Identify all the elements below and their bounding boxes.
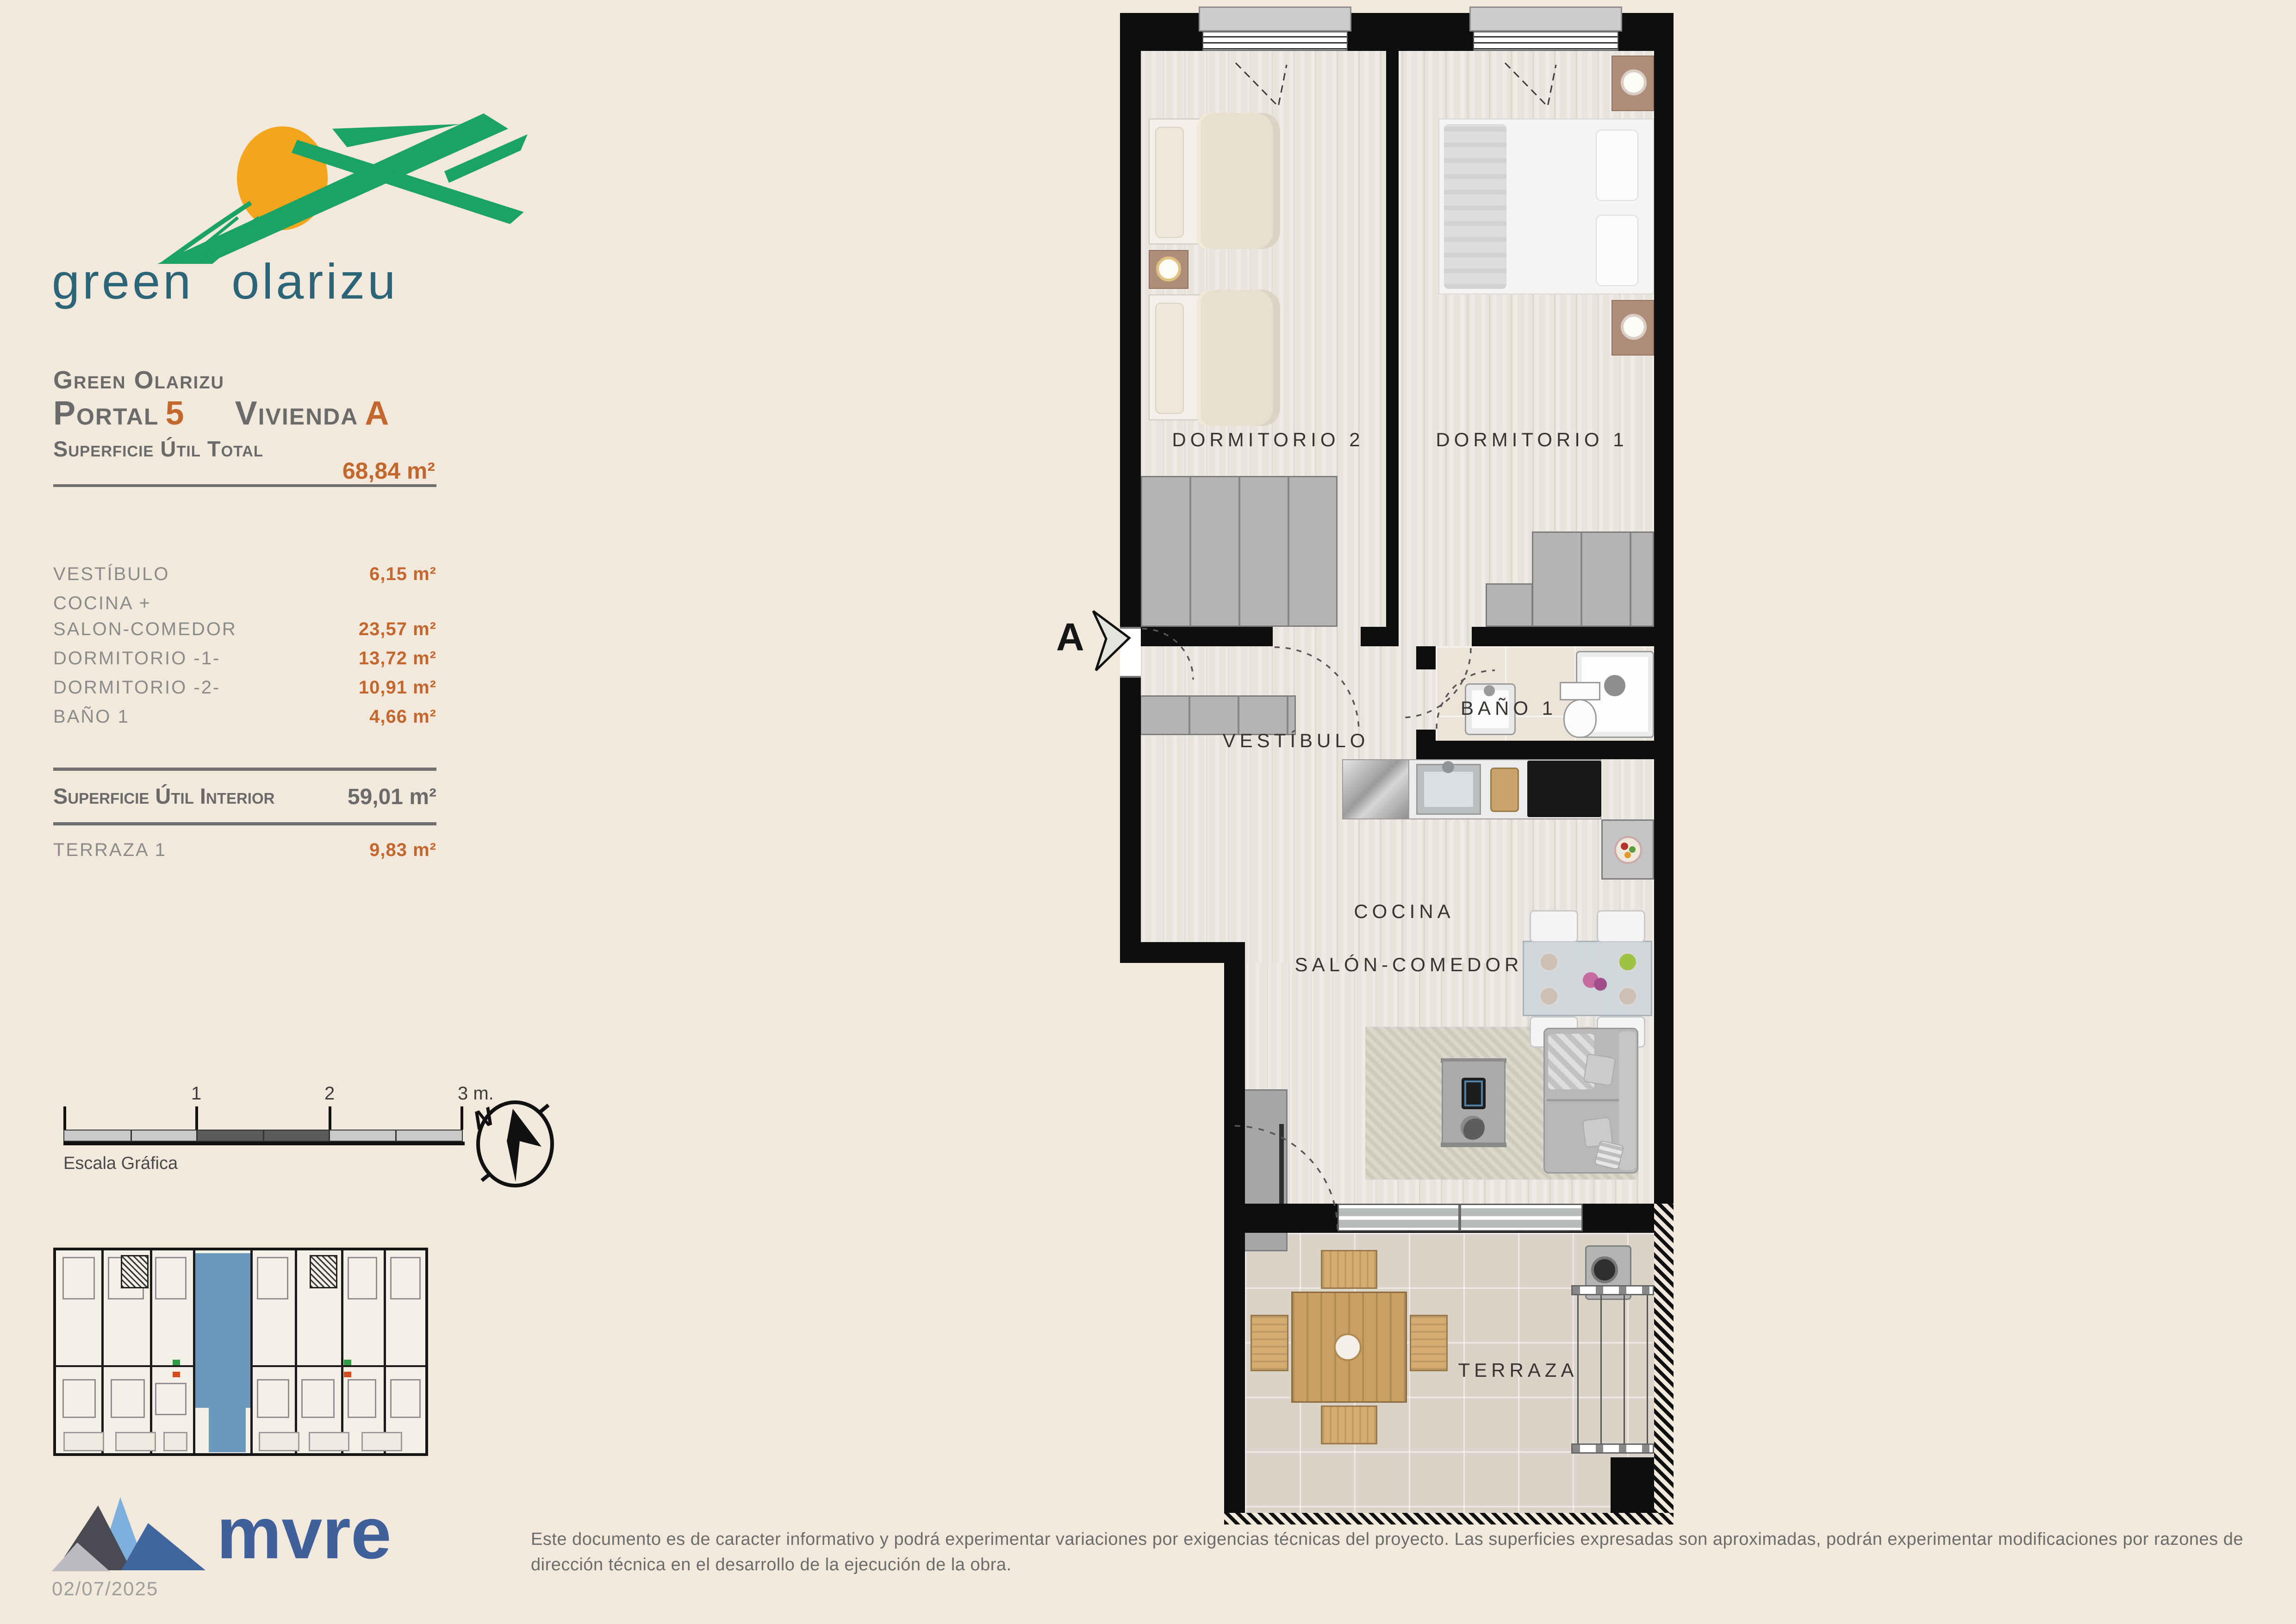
dishwasher	[1342, 759, 1409, 819]
scale-tick	[195, 1106, 198, 1130]
room-label-dorm2: DORMITORIO 2	[1171, 429, 1365, 451]
terrace-corner-block	[1611, 1457, 1654, 1513]
area-row: DORMITORIO -2- 10,91 m²	[53, 677, 436, 703]
bed-pillow	[1596, 130, 1638, 201]
mini-wall	[250, 1250, 253, 1453]
wall-left-lower	[1224, 963, 1245, 1524]
fruit-icon	[1629, 846, 1636, 853]
scale-bar-track	[63, 1130, 463, 1142]
scale-tick	[460, 1106, 463, 1130]
terrace-chair	[1321, 1405, 1377, 1444]
bed-pillow	[1155, 127, 1184, 238]
mini-balcony	[115, 1432, 156, 1451]
room-label-salon: SALÓN-COMEDOR	[1288, 954, 1529, 976]
table-lamp-icon	[1621, 314, 1647, 340]
mini-room	[390, 1257, 421, 1299]
mini-door-marker-green	[344, 1360, 351, 1365]
terrace-sliding-door	[1338, 1204, 1583, 1231]
sofa-pillow	[1583, 1054, 1616, 1087]
area-row-label: VESTÍBULO	[53, 564, 170, 584]
cutting-board	[1490, 768, 1519, 812]
plate-icon	[1618, 986, 1638, 1006]
compass-letter: N	[470, 1101, 498, 1136]
mini-door-marker-red	[173, 1372, 180, 1377]
mini-wall	[384, 1250, 386, 1453]
bed-duvet	[1197, 290, 1280, 426]
wall-step	[1120, 942, 1245, 963]
total-surface-label: Superficie Útil Total	[53, 436, 263, 462]
mini-room	[62, 1257, 95, 1299]
wall-bath-bottom	[1416, 741, 1654, 759]
wall-left-mid	[1120, 678, 1141, 963]
divider	[53, 484, 436, 487]
mini-room	[348, 1257, 377, 1299]
wall-bath-left-a	[1416, 646, 1436, 669]
window-frame	[1202, 31, 1348, 51]
area-row-label: COCINA +	[53, 593, 151, 613]
decor-bowl-icon	[1461, 1116, 1485, 1140]
total-surface-value: 68,84 m²	[250, 457, 435, 484]
wardrobe-dorm1	[1532, 531, 1654, 627]
plate-icon	[1618, 952, 1638, 972]
scale-segment	[397, 1131, 462, 1141]
mini-room	[62, 1379, 96, 1418]
terrace-chair	[1321, 1250, 1377, 1289]
area-row-value: 4,66 m²	[369, 706, 436, 727]
dining-chair	[1530, 910, 1578, 943]
mini-balcony	[361, 1432, 402, 1451]
mini-room	[257, 1257, 288, 1299]
tv-screen-icon	[1279, 1124, 1284, 1217]
dining-chair	[1597, 910, 1645, 943]
mini-highlighted-terrace	[209, 1408, 246, 1452]
area-row: DORMITORIO -1- 13,72 m²	[53, 648, 436, 674]
scale-caption: Escala Gráfica	[63, 1154, 178, 1174]
scale-baseline	[63, 1142, 465, 1145]
table-lamp-icon	[1156, 256, 1181, 281]
fruit-icon	[1624, 852, 1631, 858]
scale-segment	[198, 1131, 264, 1141]
terrace-row-label: TERRAZA 1	[53, 840, 167, 860]
bed-pillow	[1596, 215, 1638, 286]
wall-bedrooms-hall-b	[1361, 627, 1399, 646]
terrace-plate-icon	[1334, 1333, 1362, 1361]
washer-door-icon	[1591, 1256, 1618, 1283]
area-row-value: 6,15 m²	[369, 564, 436, 585]
window-dorm2	[1199, 6, 1351, 51]
portal-number: 5	[166, 394, 185, 432]
wall-bedroom-partition	[1386, 51, 1399, 627]
bed-pillow	[1155, 303, 1184, 414]
mini-highlighted-unit	[195, 1253, 250, 1408]
legal-disclaimer: Este documento es de caracter informativ…	[531, 1527, 2257, 1578]
wall-right-terrace-hatched	[1654, 1204, 1674, 1524]
bathtub-drain-icon	[1604, 675, 1625, 696]
area-row: BAÑO 1 4,66 m²	[53, 706, 436, 732]
terrace-row: TERRAZA 1 9,83 m²	[53, 840, 436, 866]
mini-wall	[295, 1250, 297, 1453]
green-olarizu-logo	[42, 65, 532, 264]
brand-wordmark: green olarizu	[52, 252, 398, 310]
tablet-icon	[1462, 1078, 1486, 1109]
window-sill	[1469, 6, 1622, 31]
area-row: SALON-COMEDOR 23,57 m²	[53, 619, 436, 645]
fruit-icon	[1621, 843, 1628, 850]
area-row-label: BAÑO 1	[53, 706, 130, 727]
sofa-seat-divider	[1547, 1099, 1619, 1101]
bed-duvet	[1197, 113, 1280, 249]
mini-stair-core	[310, 1255, 337, 1288]
scale-tick	[329, 1106, 331, 1130]
window-dorm1	[1469, 6, 1622, 51]
mini-door-marker-red	[344, 1372, 351, 1377]
table-lamp-icon	[1621, 69, 1647, 95]
mini-stair-core	[121, 1255, 149, 1288]
portal-label: Portal	[53, 394, 159, 432]
area-row-label: DORMITORIO -1-	[53, 648, 220, 668]
fruit-plate-icon	[1614, 836, 1642, 864]
mvre-wordmark: mvre	[217, 1492, 392, 1575]
wardrobe-dorm1-step	[1486, 583, 1533, 627]
mini-room	[390, 1379, 421, 1418]
area-row-value: 13,72 m²	[359, 648, 436, 669]
mini-balcony	[259, 1432, 299, 1451]
room-label-vestibulo: VESTÍBULO	[1199, 730, 1393, 752]
mvre-logo-icon	[52, 1494, 209, 1573]
mini-room	[155, 1383, 187, 1415]
terrace-bottom-edge-hatched	[1224, 1513, 1674, 1524]
scale-segment	[132, 1131, 198, 1141]
mini-room	[111, 1379, 145, 1418]
coffee-table-rail	[1441, 1143, 1506, 1147]
mini-balcony	[163, 1432, 187, 1451]
wall-bedrooms-hall-c	[1472, 627, 1654, 646]
wardrobe-dorm2	[1141, 476, 1338, 627]
divider	[53, 822, 436, 825]
mini-door-marker-green	[173, 1360, 180, 1365]
terrace-row-value: 9,83 m²	[369, 840, 436, 861]
area-row: VESTÍBULO 6,15 m²	[53, 564, 436, 590]
wall-bedrooms-hall-a	[1141, 627, 1273, 646]
area-row-value: 10,91 m²	[359, 677, 436, 698]
scale-segment	[64, 1131, 132, 1141]
scale-tick	[63, 1106, 66, 1130]
wall-right	[1654, 13, 1674, 1204]
mini-balcony	[63, 1432, 104, 1451]
scale-bar: 1 2 3 m. Escala Gráfica	[63, 1083, 526, 1181]
interior-surface-label: Superficie Útil Interior	[53, 783, 274, 809]
mini-room	[301, 1379, 335, 1418]
mini-room	[257, 1379, 289, 1418]
drying-rack-rail	[1571, 1285, 1654, 1295]
scale-segment	[264, 1131, 330, 1141]
kitchen-faucet-icon	[1442, 761, 1454, 773]
mini-balcony	[309, 1432, 349, 1451]
section-marker-letter: A	[1056, 615, 1084, 660]
mini-room	[155, 1257, 187, 1299]
scale-segment	[330, 1131, 397, 1141]
area-row-value: 23,57 m²	[359, 619, 436, 640]
portal-vivienda-line: Portal 5 Vivienda A	[53, 394, 390, 432]
drying-rack-rail	[1571, 1443, 1654, 1454]
scale-tick-label-1: 1	[191, 1083, 201, 1104]
area-row-label: DORMITORIO -2-	[53, 677, 220, 698]
sink-faucet-icon	[1484, 685, 1495, 696]
vivienda-letter: A	[365, 394, 390, 432]
section-arrow-icon	[1092, 609, 1132, 672]
date-stamp: 02/07/2025	[52, 1578, 158, 1600]
interior-surface-value: 59,01 m²	[298, 784, 436, 810]
scale-tick-label-2: 2	[324, 1083, 335, 1104]
terrace-chair	[1251, 1315, 1288, 1371]
cooktop	[1527, 761, 1601, 817]
plate-icon	[1539, 986, 1559, 1006]
floor-plan: DORMITORIO 2 DORMITORIO 1 VESTÍBULO BAÑO…	[1120, 13, 1674, 1524]
project-title: Green Olarizu	[53, 366, 224, 394]
mini-wall	[101, 1250, 104, 1453]
area-row-label: SALON-COMEDOR	[53, 619, 237, 639]
mini-wall	[150, 1250, 152, 1453]
wall-bath-left-b	[1416, 730, 1436, 741]
room-label-terraza: TERRAZA	[1425, 1359, 1611, 1381]
bed-throw-blanket	[1444, 124, 1506, 289]
building-key-plan	[53, 1248, 428, 1456]
wall-left-upper	[1120, 13, 1141, 627]
mini-wall	[341, 1250, 343, 1453]
room-label-cocina: COCINA	[1312, 900, 1497, 923]
vivienda-label: Vivienda	[235, 394, 359, 432]
plate-icon	[1539, 952, 1559, 972]
mini-room	[348, 1379, 376, 1418]
window-frame	[1473, 31, 1618, 51]
divider	[53, 768, 436, 771]
compass-north-icon: N	[470, 1095, 560, 1190]
room-label-dorm1: DORMITORIO 1	[1435, 429, 1629, 451]
window-sill	[1199, 6, 1351, 31]
area-row: COCINA +	[53, 593, 436, 619]
room-label-bano: BAÑO 1	[1439, 697, 1578, 719]
slider-mullion	[1458, 1205, 1461, 1230]
flowers-icon	[1594, 978, 1607, 991]
